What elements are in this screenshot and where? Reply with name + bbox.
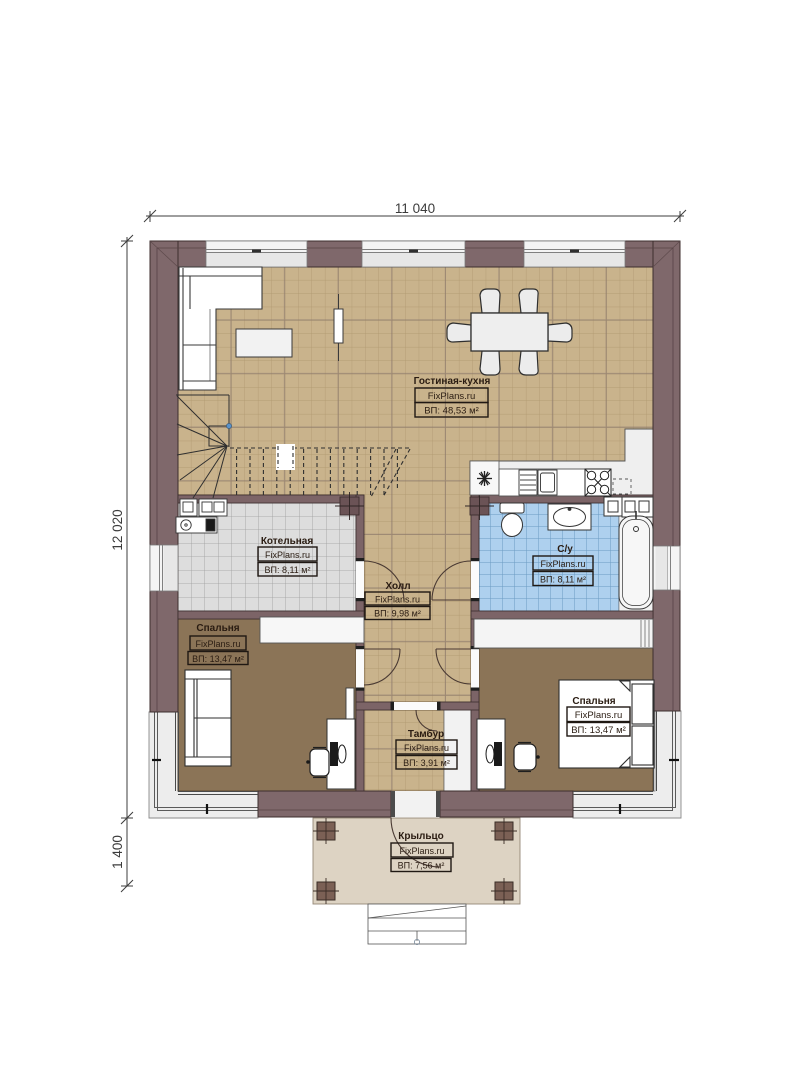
svg-text:Спальня: Спальня [196,623,239,634]
svg-text:ВП: 8,11 м²: ВП: 8,11 м² [264,565,310,575]
svg-text:С/у: С/у [557,544,573,555]
svg-text:Холл: Холл [385,581,410,592]
svg-text:FixPlans.ru: FixPlans.ru [195,639,240,649]
svg-text:Тамбур: Тамбур [408,728,444,740]
svg-text:FixPlans.ru: FixPlans.ru [265,550,310,560]
svg-text:Спальня: Спальня [572,696,615,707]
svg-text:Котельная: Котельная [261,536,314,547]
svg-text:FixPlans.ru: FixPlans.ru [540,559,585,569]
svg-text:ВП: 3,91 м²: ВП: 3,91 м² [403,758,450,768]
svg-text:ВП: 48,53 м²: ВП: 48,53 м² [424,406,479,417]
svg-text:12 020: 12 020 [110,509,125,550]
svg-text:ВП: 13,47 м²: ВП: 13,47 м² [571,725,626,736]
svg-text:FixPlans.ru: FixPlans.ru [428,391,476,402]
svg-text:FixPlans.ru: FixPlans.ru [375,595,420,605]
svg-text:Гостиная-кухня: Гостиная-кухня [414,376,491,387]
svg-text:Крыльцо: Крыльцо [398,831,444,842]
svg-text:FixPlans.ru: FixPlans.ru [404,743,449,753]
svg-text:FixPlans.ru: FixPlans.ru [575,710,623,721]
svg-text:ВП: 13,47 м²: ВП: 13,47 м² [192,654,244,664]
svg-text:11 040: 11 040 [395,201,435,216]
svg-text:ВП: 7,56 м²: ВП: 7,56 м² [398,861,445,871]
svg-text:ВП: 9,98 м²: ВП: 9,98 м² [374,609,421,619]
svg-text:FixPlans.ru: FixPlans.ru [399,846,444,856]
svg-text:ВП: 8,11 м²: ВП: 8,11 м² [540,575,586,585]
svg-text:1 400: 1 400 [110,835,125,869]
